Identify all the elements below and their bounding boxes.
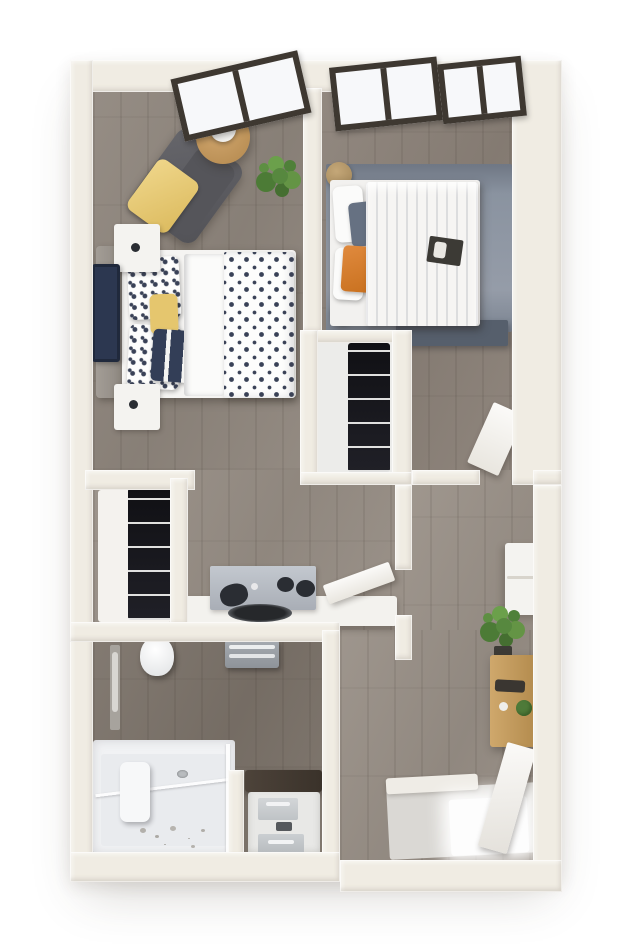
desk-mug xyxy=(499,702,508,711)
towel xyxy=(112,652,118,712)
towel-shelf-rail-bottom xyxy=(229,654,275,658)
wall-bathroom-east xyxy=(322,630,340,875)
toilet xyxy=(140,636,174,676)
shower-toiletries xyxy=(140,828,146,833)
towel-shelf-rail-top xyxy=(229,645,275,649)
desk-plant xyxy=(516,700,532,716)
wall-bottom-left xyxy=(70,852,340,882)
shower-caddy xyxy=(120,762,150,822)
wall-closet-west xyxy=(300,330,318,485)
range-dial-icon xyxy=(251,583,258,590)
wall-bedroom-2-south-right xyxy=(533,470,562,485)
window-mullion-icon xyxy=(232,70,250,122)
desk-laptop xyxy=(495,679,526,693)
bedroom-2-window-right xyxy=(437,56,527,124)
wall-hall-lower xyxy=(395,615,412,660)
wall-bottom-right xyxy=(340,860,562,892)
floor-plan xyxy=(0,0,640,945)
vanity-handle-bottom-icon xyxy=(268,840,294,844)
kitchen-sink xyxy=(228,604,292,622)
wall-kitchen-south xyxy=(70,622,340,642)
wall-closet-east xyxy=(392,330,412,485)
vanity-faucet-icon xyxy=(276,822,292,831)
walk-in-closet-shelves xyxy=(348,343,390,472)
wall-right-upper xyxy=(512,60,562,485)
vanity-handle-top-icon xyxy=(266,802,290,806)
shower-drain-icon xyxy=(177,770,188,778)
nightstand-north-knob-icon xyxy=(131,243,140,252)
window-mullion-icon xyxy=(380,68,391,120)
wall-pantry-east xyxy=(170,478,188,626)
polka-dot-duvet xyxy=(224,252,294,398)
range-knob-mid-icon xyxy=(277,577,294,592)
vanity-countertop xyxy=(245,770,322,792)
wall-left xyxy=(70,60,93,862)
pantry-shelves xyxy=(128,488,172,620)
window-mullion-icon xyxy=(477,66,488,114)
nightstand-south-knob-icon xyxy=(129,400,138,409)
bedroom-2-window-left xyxy=(329,57,443,132)
wall-vanity-divider xyxy=(228,770,244,858)
wall-bedroom-2-south-left xyxy=(412,470,480,485)
bedroom-1-plant xyxy=(272,168,288,184)
bed-1-folded-sheet xyxy=(184,254,224,396)
wall-right-lower xyxy=(533,485,562,875)
tray-book xyxy=(433,241,447,259)
wood-desk xyxy=(490,655,538,747)
navy-wall-art xyxy=(92,264,120,362)
entry-plant xyxy=(496,618,512,634)
wall-closet-south xyxy=(300,472,412,485)
range-knob-right-icon xyxy=(296,580,315,597)
wall-bedroom-divider xyxy=(303,88,322,333)
vanity-drawer-bottom xyxy=(258,834,304,854)
wall-hall-upper xyxy=(395,485,412,570)
